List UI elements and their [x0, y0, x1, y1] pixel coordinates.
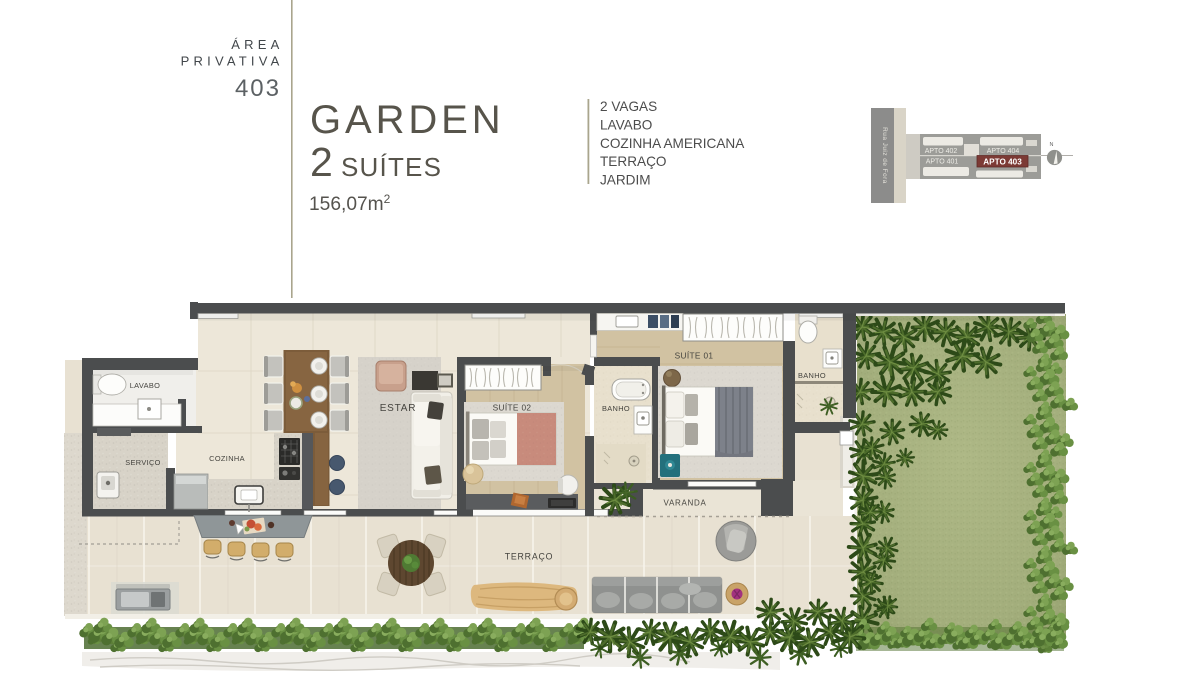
svg-text:LAVABO: LAVABO	[600, 117, 652, 132]
svg-text:Rua Juiz de Fora: Rua Juiz de Fora	[881, 127, 888, 184]
svg-text:SUÍTE 02: SUÍTE 02	[493, 403, 532, 413]
svg-text:N: N	[1050, 142, 1054, 148]
svg-text:TERRAÇO: TERRAÇO	[600, 154, 666, 169]
svg-text:BANHO: BANHO	[798, 371, 826, 380]
svg-text:VARANDA: VARANDA	[664, 499, 707, 508]
svg-text:APTO 402: APTO 402	[925, 148, 958, 155]
svg-text:COZINHA AMERICANA: COZINHA AMERICANA	[600, 136, 745, 151]
svg-text:COZINHA: COZINHA	[209, 454, 245, 463]
svg-text:ESTAR: ESTAR	[380, 403, 417, 414]
svg-text:APTO 404: APTO 404	[987, 148, 1020, 155]
svg-text:ÁREA: ÁREA	[231, 37, 283, 52]
svg-text:SUÍTES: SUÍTES	[341, 152, 442, 182]
svg-text:156,07m2: 156,07m2	[309, 192, 391, 215]
svg-text:2: 2	[310, 139, 333, 185]
svg-text:LAVABO: LAVABO	[130, 381, 161, 390]
svg-text:GARDEN: GARDEN	[310, 98, 505, 142]
svg-text:APTO 401: APTO 401	[926, 159, 959, 166]
svg-text:JARDIM: JARDIM	[600, 173, 651, 188]
svg-text:BANHO: BANHO	[602, 404, 630, 413]
svg-text:PRIVATIVA: PRIVATIVA	[181, 54, 284, 69]
svg-text:SERVIÇO: SERVIÇO	[125, 458, 161, 467]
svg-text:2 VAGAS: 2 VAGAS	[600, 99, 657, 114]
svg-text:403: 403	[235, 75, 281, 102]
svg-text:TERRAÇO: TERRAÇO	[505, 552, 554, 562]
svg-text:APTO 403: APTO 403	[983, 158, 1022, 167]
svg-text:SUÍTE 01: SUÍTE 01	[675, 351, 714, 361]
